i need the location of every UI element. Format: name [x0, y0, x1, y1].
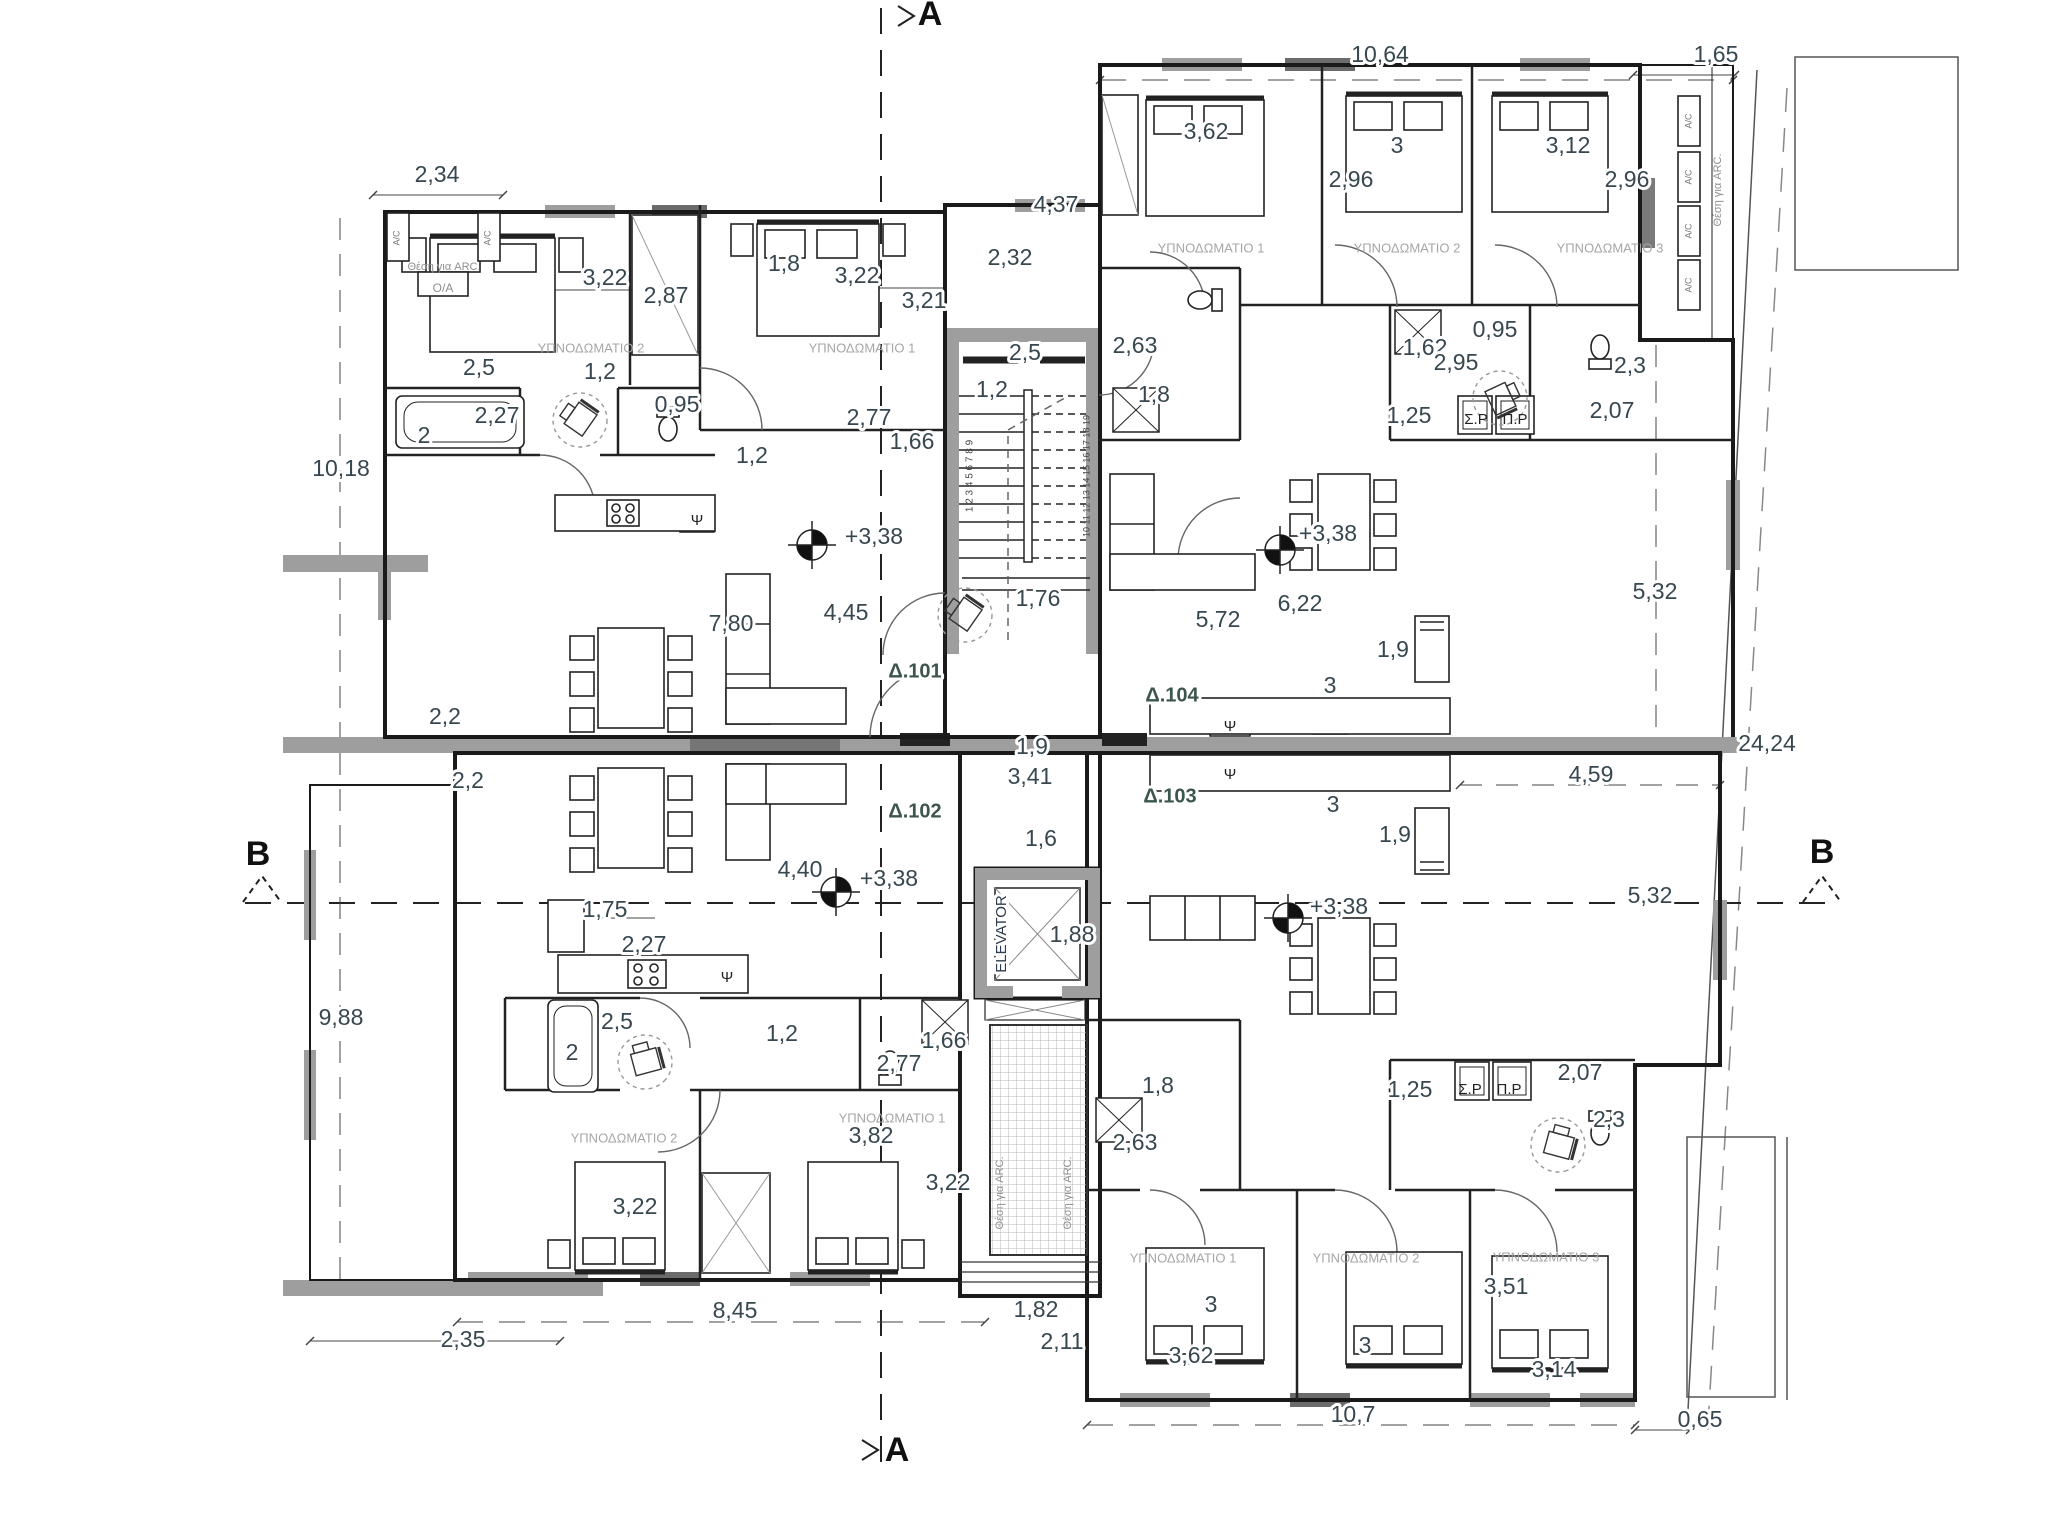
dryer-label: Π.Ρ	[1496, 1081, 1521, 1098]
dimension-label: 2,2	[429, 703, 461, 729]
apartment-label-103: Δ.103	[1143, 785, 1196, 807]
room-label-bedroom2: ΥΠΝΟΔΩΜΑΤΙΟ 2	[1354, 240, 1461, 255]
arc-area-label: Θέση για ARC.	[994, 1156, 1006, 1229]
ac-unit-label: A/C	[1683, 223, 1693, 239]
dimension-label: 2	[566, 1039, 579, 1065]
dimension-label: 1,2	[766, 1020, 798, 1046]
room-label-bedroom3: ΥΠΝΟΔΩΜΑΤΙΟ 3	[1493, 1249, 1600, 1264]
bed	[1346, 94, 1462, 212]
dimension-label: 24,24	[1738, 730, 1796, 756]
dimension-label: 3,14	[1532, 1356, 1577, 1382]
dimension-label: 3	[1391, 132, 1404, 158]
stair-step-numbers: 1 2 3 4 5 6 7 8 9	[965, 439, 976, 512]
elevator-label: ELEVATOR	[993, 895, 1010, 973]
dimension-label: 10,18	[312, 455, 370, 481]
dimension-label: 0,95	[655, 391, 700, 417]
dimension-label: +3,38	[1310, 893, 1368, 919]
room-label-bedroom1: ΥΠΝΟΔΩΜΑΤΙΟ 1	[809, 340, 916, 355]
kitchen-counter	[1150, 616, 1450, 734]
dimension-label: 3	[1327, 791, 1340, 817]
dimension-label: 2,77	[877, 1050, 922, 1076]
sink-symbol: Ψ	[1224, 766, 1237, 783]
wardrobe	[702, 1173, 770, 1273]
ac-unit-label: A/C	[1683, 169, 1693, 185]
dimension-label: 2	[418, 422, 431, 448]
dimension-label: 1,76	[1016, 585, 1061, 611]
dimension-label: 3,22	[613, 1193, 658, 1219]
dimension-label: 3,62	[1184, 118, 1229, 144]
apartment-label-102: Δ.102	[888, 800, 941, 822]
dimension-label: 2,3	[1614, 352, 1646, 378]
arc-area-label: Θέση για ARC.	[407, 261, 480, 273]
ac-unit-label: A/C	[391, 230, 401, 246]
sink-symbol: Ψ	[721, 969, 734, 986]
dimension-label: 8,45	[713, 1297, 758, 1323]
dining-table	[570, 628, 692, 732]
sofa	[1150, 896, 1255, 940]
room-label-bedroom2: ΥΠΝΟΔΩΜΑΤΙΟ 2	[1313, 1250, 1420, 1265]
dimension-label: 1,6	[1025, 825, 1057, 851]
dimension-label: 2,87	[644, 282, 689, 308]
dimension-label: 6,22	[1278, 590, 1323, 616]
ac-unit-label: A/C	[482, 230, 492, 246]
dimension-label: 4,45	[824, 599, 869, 625]
dimension-label: 1,9	[1016, 733, 1048, 759]
section-marker-b-right: B	[1810, 833, 1835, 871]
dimension-label: 1,82	[1014, 1296, 1059, 1322]
dimension-label: 4,37	[1034, 191, 1079, 217]
sink-symbol: Ψ	[1224, 718, 1237, 735]
dimension-label: 2,96	[1329, 166, 1374, 192]
dimension-label: 2,63	[1113, 1129, 1158, 1155]
arc-area-label: Θέση για ARC.	[1062, 1156, 1074, 1229]
dimension-label: 3,21	[902, 287, 947, 313]
toilet	[1188, 289, 1222, 311]
apartment-label-104: Δ.104	[1145, 684, 1199, 706]
dimension-label: 2,07	[1558, 1059, 1603, 1085]
section-a-arrow-top	[898, 6, 914, 26]
dimension-label: 3,12	[1546, 132, 1591, 158]
room-label-bedroom2: ΥΠΝΟΔΩΜΑΤΙΟ 2	[538, 340, 645, 355]
dimension-label: 1,2	[736, 442, 768, 468]
dimension-label: 10,64	[1351, 41, 1409, 67]
dimension-label: 2,2	[452, 767, 484, 793]
dimension-label: 2,27	[622, 931, 667, 957]
dimension-label: 1,8	[1138, 381, 1170, 407]
section-marker-a-bottom: A	[885, 1431, 910, 1469]
dimension-label: 3	[1205, 1291, 1218, 1317]
dimension-label: 2,27	[475, 402, 520, 428]
dimension-label: 1,25	[1388, 1076, 1433, 1102]
dimension-label: 1,75	[583, 896, 628, 922]
section-a-arrow-bottom	[862, 1440, 878, 1460]
toilet	[1589, 335, 1611, 369]
arc-area-label: Θέση για ARC.	[1712, 153, 1724, 226]
section-marker-b-left: B	[246, 835, 271, 873]
dimension-label: 2,3	[1593, 1106, 1625, 1132]
bed	[808, 1162, 924, 1272]
wheelchair-symbol	[607, 1024, 683, 1100]
dimension-label: 2,07	[1590, 397, 1635, 423]
room-label-bedroom1: ΥΠΝΟΔΩΜΑΤΙΟ 1	[1130, 1250, 1237, 1265]
dryer-label: Π.Ρ	[1502, 411, 1527, 428]
sofa	[1110, 474, 1255, 590]
dimension-label: 5,72	[1196, 606, 1241, 632]
section-b-arrow-left	[243, 876, 281, 902]
washer-label: Σ.Ρ	[1464, 411, 1487, 428]
dimension-label: 5,32	[1628, 882, 1673, 908]
dimension-label: 1,65	[1694, 41, 1739, 67]
dimension-label: 3	[1359, 1332, 1372, 1358]
dimension-label: 3,62	[1169, 1342, 1214, 1368]
dimension-label: 4,40	[778, 856, 823, 882]
dimension-label: +3,38	[1299, 520, 1357, 546]
bed	[1146, 98, 1264, 216]
washer-label: Σ.Ρ	[1458, 1081, 1481, 1098]
dimension-label: 1,8	[1142, 1072, 1174, 1098]
dimension-label: 1,9	[1379, 821, 1411, 847]
sink-symbol: Ψ	[691, 512, 704, 529]
dining-table	[570, 768, 692, 872]
wheelchair-symbol	[1523, 1110, 1592, 1179]
dimension-label: 3,22	[926, 1169, 971, 1195]
dimension-label: 1,2	[976, 376, 1008, 402]
dimension-label: 0,95	[1473, 316, 1518, 342]
dimension-label: 2,96	[1605, 166, 1650, 192]
dimension-label: 1,66	[890, 428, 935, 454]
dimension-label: 7,80	[709, 610, 754, 636]
dimension-label: 2,5	[1009, 339, 1041, 365]
wardrobe	[1102, 95, 1138, 215]
section-b-arrow-right	[1803, 876, 1841, 902]
sofa	[726, 574, 846, 724]
balcony-outline	[310, 785, 455, 1280]
dimension-label: 3,82	[849, 1122, 894, 1148]
ac-unit-label: A/C	[1683, 277, 1693, 293]
dimension-label: 2,5	[601, 1008, 633, 1034]
dimension-label: 5,32	[1633, 578, 1678, 604]
wheelchair-symbol	[553, 393, 607, 447]
dimension-label: 2,32	[988, 244, 1033, 270]
dimension-label: +3,38	[845, 523, 903, 549]
room-label-bedroom1: ΥΠΝΟΔΩΜΑΤΙΟ 1	[1158, 240, 1265, 255]
oa-label: O/A	[433, 281, 454, 295]
room-label-bedroom3: ΥΠΝΟΔΩΜΑΤΙΟ 3	[1557, 240, 1664, 255]
dimension-label: 1,8	[768, 250, 800, 276]
floor-plan-page: AABB2,3410,641,654,372,323,222,871,83,22…	[0, 0, 2048, 1536]
dimension-label: 2,95	[1434, 349, 1479, 375]
dimension-label: 0,65	[1678, 1406, 1723, 1432]
floor-plan-drawing: AABB2,3410,641,654,372,323,222,871,83,22…	[0, 0, 2048, 1536]
dimension-label: +3,38	[860, 865, 918, 891]
dimension-label: 1,66	[922, 1027, 967, 1053]
apartment-label-101: Δ.101	[888, 660, 941, 682]
dimension-label: 3,22	[835, 262, 880, 288]
dimension-label: 1,88	[1050, 921, 1095, 947]
ac-unit-label: A/C	[1683, 113, 1693, 129]
room-label-bedroom2: ΥΠΝΟΔΩΜΑΤΙΟ 2	[571, 1130, 678, 1145]
kitchen-counter	[1150, 755, 1450, 874]
entrance-walkway	[960, 1025, 1100, 1282]
dimension-label: 4,59	[1569, 761, 1614, 787]
dimension-label: 9,88	[319, 1004, 364, 1030]
dimension-label: 1,9	[1377, 636, 1409, 662]
dimension-label: 2,35	[441, 1326, 486, 1352]
sofa	[726, 764, 846, 860]
dimension-label: 1,25	[1387, 402, 1432, 428]
dimension-label: 3	[1324, 672, 1337, 698]
dimension-label: 3,51	[1484, 1273, 1529, 1299]
dimension-label: 2,34	[415, 161, 460, 187]
dimension-label: 2,77	[847, 404, 892, 430]
dimension-label: 3,22	[583, 264, 628, 290]
dimension-label: 2,5	[463, 354, 495, 380]
dimension-label: 2,11	[1040, 1328, 1083, 1354]
dimension-label: 1,2	[584, 358, 616, 384]
room-label-bedroom1: ΥΠΝΟΔΩΜΑΤΙΟ 1	[839, 1110, 946, 1125]
dimension-label: 10,7	[1331, 1401, 1376, 1427]
level-marker	[788, 521, 836, 569]
dimension-label: 3,41	[1008, 763, 1053, 789]
stair-step-numbers: 10 11 12 13 14 15 16 17 18 19	[1081, 415, 1091, 537]
section-marker-a-top: A	[918, 0, 943, 33]
dimension-label: 2,63	[1113, 332, 1158, 358]
dining-table	[1290, 918, 1396, 1014]
